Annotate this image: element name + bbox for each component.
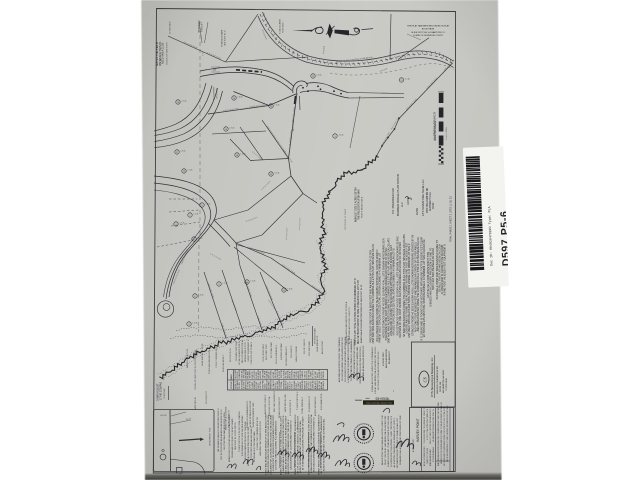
svg-text:RVSD: RVSD [415,208,419,215]
svg-text:CTS Surveying & Mapping, Inc: CTS Surveying & Mapping, Inc [430,357,434,397]
svg-text:225 TOTAL STATI: 225 TOTAL STATI [270,342,273,358]
svg-text:AND WAS ADJUSTED USING THE COM: AND WAS ADJUSTED USING THE COMPASS [338,336,341,382]
svg-text:1 inch = 200 ft: 1 inch = 200 ft [445,127,448,140]
svg-text:1.8 Ac: 1.8 Ac [237,96,242,99]
svg-text:ACRES SETBACKS F: ACRES SETBACKS F [314,395,317,416]
svg-text:ONE FOOT IN 100000 FEET E: ONE FOOT IN 100000 FEET E [235,422,237,450]
svg-text:THIS PLAT: THIS PLAT [163,387,166,399]
svg-text:IS FOUND TO: IS FOUND TO [206,391,208,404]
svg-text:ER ANGLE P: ER ANGLE P [388,350,391,364]
svg-text:00 FEET AND: 00 FEET AND [169,21,172,34]
svg-text:1.0 Ac: 1.0 Ac [198,294,203,297]
svg-text:40 MINIMUM LOT: 40 MINIMUM LOT [309,395,311,412]
svg-text:CISION OF ONE FOOT: CISION OF ONE FOOT [167,41,169,65]
svg-text:1.8 Ac: 1.8 Ac [287,288,292,291]
svg-text:GRAPHIC SCALE: GRAPHIC SCALE [434,120,437,141]
svg-text:ENT USED TOPCON GTS 225 TOTAL: ENT USED TOPCON GTS 225 TOTAL STATION ZO… [408,243,411,338]
svg-text:2880 HOLCOMB BR RD: 2880 HOLCOMB BR RD [427,188,429,213]
svg-text:ION OF ONE FO: ION OF ONE FO [304,338,306,354]
svg-text:1.0 Ac: 1.0 Ac [197,237,202,240]
svg-text:LAT IS BASED HAS A CLOSURE PRE: LAT IS BASED HAS A CLOSURE PRECISION O [217,408,220,452]
svg-text:ASED HAS A CLOSURE PRECISION O: ASED HAS A CLOSURE PRECISION OF ONE FOOT… [360,284,363,343]
svg-text:0 FEET EQUIPMENT U: 0 FEET EQUIPMENT U [248,339,250,361]
svg-text:2.0 Ac: 2.0 Ac [180,150,185,153]
svg-text:AND WAS ADJUSTED USING THE COM: AND WAS ADJUSTED USING THE COMPASS RULE … [437,401,440,466]
svg-text:FINAL PHASE 1 SHEET 2 LOT: FINAL PHASE 1 SHEET 2 LOTS 11-18, 23 [450,196,453,242]
svg-text:2.1 Ac: 2.1 Ac [405,78,410,81]
svg-text:ACRES SETBACKS FRONT 40 SIDE 1: ACRES SETBACKS FRONT 40 SIDE 15 REAR 40 … [323,418,326,471]
svg-text:RATE WITHIN: RATE WITHIN [194,397,197,410]
svg-text:THIS PLAT IS: THIS PLAT IS [290,345,293,358]
svg-text:ER ANGL: ER ANGL [322,380,325,390]
svg-text:PLAT HAS BEEN C: PLAT HAS BEEN C [222,354,225,372]
svg-text:T USED TOPCON GTS 225 TOTAL ST: T USED TOPCON GTS 225 TOTAL STATION [238,411,241,452]
svg-text:CISION OF ONE FOOT IN 35000 FE: CISION OF ONE FOOT IN 35000 FEET AND [194,349,197,390]
svg-text:BOOK PAGE: BOOK PAGE [422,28,435,31]
svg-text:US 411: US 411 [160,415,167,417]
svg-text:ALPHARETTA GA: ALPHARETTA GA [429,192,432,211]
svg-text:RULE THIS PLAT HAS BEEN CALCUL: RULE THIS PLAT HAS BEEN CALCULATED FOR [384,415,387,464]
svg-text:HE FIELD DATA UPON WHICH THIS: HE FIELD DATA UPON WHICH THIS PLAT [244,421,247,460]
svg-text:ING R 40 MINIMUM LOT SIZE 2 AC: ING R 40 MINIMUM LOT SIZE 2 ACRES SETBAC… [446,405,449,462]
svg-text:LD DATA UPON WHICH THIS PLAT I: LD DATA UPON WHICH THIS PLAT IS [432,409,435,442]
svg-text:DATA UPON WHICH THIS: DATA UPON WHICH THIS [252,402,255,427]
svg-text:1.2 Ac: 1.2 Ac [222,282,227,285]
svg-text:EEN CALCULATED FOR CLOSURE AND: EEN CALCULATED FOR CLOSURE AND IS FOUND … [313,417,316,472]
svg-text:IPMENT USED TOPCON GTS 225 TOT: IPMENT USED TOPCON GTS 225 TOTAL STATION… [379,252,382,343]
svg-text:1.3 Ac: 1.3 Ac [250,280,255,283]
svg-text:WHICH THIS PLAT IS BASED HAS: WHICH THIS PLAT IS BASED HAS [356,346,359,380]
svg-text:5000 FEET AND: 5000 FEET AND [308,341,311,356]
svg-text:3.2 Ac: 3.2 Ac [274,172,279,175]
svg-text:ULAR ERROR OF 02 PE: ULAR ERROR OF 02 PE [201,343,204,366]
svg-text:HAS BEEN CALCULATED FOR CLOS: HAS BEEN CALCULATED FOR CLOS [259,421,262,456]
svg-text:CLERK OF SUPERIOR COURT: CLERK OF SUPERIOR COURT [413,35,443,37]
svg-text:RES SETBACKS FRONT 40 SIDE 15: RES SETBACKS FRONT 40 SIDE 15 REAR 40 AL… [357,280,360,344]
svg-text:ADJUSTED USING T: ADJUSTED USING T [264,394,267,414]
svg-text:AT IS BASED HAS A CLOSURE PREC: AT IS BASED HAS A CLOSURE PRECISION OF O… [302,416,305,470]
svg-text:1.1 Ac: 1.1 Ac [187,169,192,172]
svg-text:1.0 Ac: 1.0 Ac [193,213,198,216]
svg-text:N 100000 FEET EQUIPMENT USED T: N 100000 FEET EQUIPMENT USED TOPCON G [348,335,350,382]
svg-text:N 44 12 E 210.5: N 44 12 E 210.5 [299,218,301,230]
svg-text:1.9 Ac: 1.9 Ac [229,127,234,130]
svg-text:POINT AND WAS ADJUST: POINT AND WAS ADJUST [208,349,211,374]
svg-text:PLAT IS BASED HAS A: PLAT IS BASED HAS A [361,196,364,218]
svg-text:ANGULAR ERROR: ANGULAR ERROR [385,348,388,368]
svg-text:ONE FOOT IN 350: ONE FOOT IN 350 [427,448,429,464]
svg-text:RECISION OF ONE FOOT IN 35000: RECISION OF ONE FOOT IN 35000 FEET AND A… [399,242,402,337]
svg-text:AND AN ANGULAR: AND AN ANGULAR [429,449,432,466]
svg-text:ALPHARETTA GA 30022: ALPHARETTA GA 30022 [442,369,445,393]
svg-text:F 02 PER ANGLE: F 02 PER ANGLE [432,446,435,462]
svg-text:IS PLAT HAS BEEN CALCULATED FO: IS PLAT HAS BEEN CALCULATED FOR CLO [341,337,344,381]
svg-text:IS FOUND TO BE ACCURATE WITHIN: IS FOUND TO BE ACCURATE WITHIN [377,351,380,390]
svg-text:1.1 Ac: 1.1 Ac [192,322,197,325]
svg-text:HARVEY POINT: HARVEY POINT [416,418,420,442]
svg-text:SS RULE THIS PLAT: SS RULE THIS PLAT [235,340,238,361]
svg-text:P.O. PREPARED FOR: P.O. PREPARED FOR [391,188,395,214]
svg-text:ONE FOOT IN 10: ONE FOOT IN 10 [225,29,227,46]
svg-text:CALCULATED FOR CLOSURE AND IS: CALCULATED FOR CLOSURE AND IS FOUND TO [290,420,293,470]
svg-text:ET AND AN ANGULAR ERROR OF: ET AND AN ANGULAR ERROR OF [362,345,365,380]
svg-text:HE FIELD DATA UPO: HE FIELD DATA UPO [285,346,288,366]
svg-text:OSURE AND IS FOUND TO BE ACCUR: OSURE AND IS FOUND TO BE ACCURATE [231,418,234,458]
svg-text:OPCON GTS: OPCON GTS [217,87,219,99]
svg-text:ACRES SETBACKS FRONT: ACRES SETBACKS FRONT [249,400,252,427]
svg-text:T USED TOPCON G: T USED TOPCON G [297,391,299,410]
svg-text:ET EQUIPMENT: ET EQUIPMENT [214,86,216,100]
svg-text:1.4 Ac: 1.4 Ac [240,153,245,156]
svg-text:LLC: LLC [400,202,404,207]
svg-text:ENT USED TOPC: ENT USED TOPC [266,343,268,360]
svg-text:ASED HAS A CLOS: ASED HAS A CLOS [162,42,165,64]
svg-text:NG R 40 MINIMUM L: NG R 40 MINIMUM L [276,344,278,364]
svg-text:02 PER ANGLE POINT AND WAS: 02 PER ANGLE POINT AND WAS [253,431,256,462]
svg-text:SURE AND I: SURE AND I [282,21,285,33]
svg-text:D597 P5-6: D597 P5-6 [498,210,512,266]
svg-text:35000 FEET AND AN ANGULAR E: 35000 FEET AND AN ANGULAR E [250,426,253,458]
svg-text:SLIDE 597 PGS 5-6 BARTOW CO: SLIDE 597 PGS 5-6 BARTOW CO [411,31,445,34]
svg-text:CENTERLINE OF CREEK: CENTERLINE OF CREEK [345,208,347,230]
svg-text:AS A CLOSURE PRECI: AS A CLOSURE PRECI [423,445,426,466]
svg-text:N 35000 FEET: N 35000 FEET [383,351,385,366]
svg-text:WITHIN ONE FOOT I: WITHIN ONE FOOT I [245,342,247,362]
svg-text:IS BASED HAS A CLOSURE PRECISI: IS BASED HAS A CLOSURE PRECISION OF ONE [399,415,402,465]
svg-text:770 555 0100: 770 555 0100 [446,377,448,391]
svg-text:N 44 12 E 210.5: N 44 12 E 210.5 [286,228,288,240]
svg-text:AND WAS ADJUSTED USING THE COM: AND WAS ADJUSTED USING THE COMPASS RULE … [417,236,420,331]
svg-text:2 ACRES SETBAC: 2 ACRES SETBAC [280,342,283,360]
svg-text:R ANGLE P: R ANGLE P [201,21,204,32]
svg-text:D WAS ADJUSTED USING THE COMPA: D WAS ADJUSTED USING THE COMPASS R [371,346,374,392]
svg-text:2.2 Ac: 2.2 Ac [181,100,186,103]
svg-text:MPASS RULE THIS PLAT HAS BEEN: MPASS RULE THIS PLAT HAS BEEN CALCULATED [228,414,231,462]
svg-text:MUM LOT SIZE 2 ACRES SETBA: MUM LOT SIZE 2 ACRES SETBA [355,187,358,222]
svg-text:CURVE TABLE: CURVE TABLE [230,374,233,389]
svg-text:G THE COMPAS: G THE COMPAS [160,381,163,400]
svg-text:GLE POINT AND WAS ADJUSTED USI: GLE POINT AND WAS ADJUSTED USING [223,411,226,450]
svg-text:A TRUE COPY: A TRUE COPY [412,438,415,452]
svg-text:CON GTS 225 TOTAL S: CON GTS 225 TOTAL S [250,341,253,364]
svg-text:CTS SURVEYING TEAM, LLC: CTS SURVEYING TEAM, LLC [421,179,425,216]
svg-text:SUITE 100: SUITE 100 [440,381,442,392]
svg-text:D IS FOUND TO BE ACCURATE WITH: D IS FOUND TO BE ACCURATE WITHIN ONE [344,336,347,381]
svg-text:LATED FOR CLOSURE AND IS FOUND: LATED FOR CLOSURE AND IS FOUND TO BE ACC… [440,402,443,464]
svg-text:UPON WHICH THIS: UPON WHICH THIS [210,427,212,446]
svg-text:IN 100000 FEET EQUIPMENT USED: IN 100000 FEET EQUIPMENT USED TOPCON GTS… [443,406,446,466]
svg-text:E AND IS FOUND TO BE ACCURATE: E AND IS FOUND TO BE ACCURATE WITHIN ONE [387,415,390,466]
svg-text:1.6 Ac: 1.6 Ac [316,74,321,77]
svg-text:IELD DATA UPON: IELD DATA UPON [320,393,323,410]
svg-text:HAS A CLOSURE: HAS A CLOSURE [295,345,298,362]
svg-text:T IN 100000 FEET EQUIPMENT USE: T IN 100000 FEET EQUIPMENT USED TO [424,407,426,444]
svg-text:G THE COMPASS RUL: G THE COMPASS RUL [215,346,218,368]
svg-text:D USING THE COMPASS RULE THI: D USING THE COMPASS RULE THI [256,417,259,450]
svg-text:BASED HAS A CLOS: BASED HAS A CLOS [186,348,189,368]
svg-text:AL STATION ZONING R 40 MINIMUM: AL STATION ZONING R 40 MINIMUM LOT SIZE … [393,417,396,467]
svg-text:HIS PLAT IS BAS: HIS PLAT IS BAS [314,328,317,344]
svg-text:TO BE ACCURATE: TO BE ACCURATE [221,29,224,47]
svg-text:ASS RULE THIS PLA: ASS RULE THIS PLA [268,396,271,416]
svg-text:THIS PLAT HAS BEEN RECORDED IN: THIS PLAT HAS BEEN RECORDED IN PLAT [407,25,450,28]
svg-text:S PLAT HAS BEEN CALCULATED FOR: S PLAT HAS BEEN CALCULATED FOR CLOSU [374,346,377,394]
svg-text:ED FOR CLOS: ED FOR CLOS [230,348,232,362]
svg-text:BARBER RIDGE PLANTATION: BARBER RIDGE PLANTATION [396,174,400,216]
svg-text:30022: 30022 [433,202,435,209]
svg-text:N ONE FOOT IN 100000 FEET EQUI: N ONE FOOT IN 100000 FEET EQUIPMENT U [444,244,447,296]
svg-text:ERROR: ERROR [323,371,325,379]
svg-text:UM LOT SIZE 2 ACRES SETBACKS F: UM LOT SIZE 2 ACRES SETBACKS FRO [429,408,432,444]
svg-text:OOT IN 35000 FEET AND AN ANGUL: OOT IN 35000 FEET AND AN ANGULAR ERROR O… [220,409,223,460]
svg-text:CS: CS [423,376,428,382]
svg-text:93+0936-: 93+0936- [376,397,390,401]
svg-text:THE FIELD DATA UPON WHI: THE FIELD DATA UPON WHI [358,189,361,220]
svg-text:NT USED TOPCON GTS 225 TOTAL S: NT USED TOPCON GTS 225 TOTAL STATION ZON… [393,248,396,335]
svg-text:5000 FEET AND AN ANGULAR ERRO: 5000 FEET AND AN ANGULAR ERRO [432,248,435,290]
svg-text:2880 HOLCOMB BRIDGE RD: 2880 HOLCOMB BRIDGE RD [437,366,439,394]
svg-text:RATE WITHIN ONE: RATE WITHIN ONE [284,394,287,412]
svg-text:RE AND IS FOUND TO: RE AND IS FOUND TO [278,397,281,418]
svg-text:RECORDED BARTOW: RECORDED BARTOW [366,401,393,405]
svg-text:4.3 Ac: 4.3 Ac [338,134,343,137]
svg-text:1.1 Ac: 1.1 Ac [179,222,184,225]
svg-text:ANGLE POINT AND WAS ADJUSTED U: ANGLE POINT AND WAS ADJUSTED USING THE [381,415,384,465]
svg-text:ANGLE POINT: ANGLE POINT [321,340,324,354]
svg-text:CON GTS 225 TOTAL STATION ZONI: CON GTS 225 TOTAL STATION ZONING R 40 MI… [354,278,357,345]
svg-text:225 TOTAL STATION ZONING R 40: 225 TOTAL STATION ZONING R 40 MINIMUM LO… [275,420,278,470]
svg-text:OINT AND WAS ADJUSTED USING TH: OINT AND WAS ADJUSTED USING THE COMPASS … [372,244,375,344]
svg-text:R 40 MINIMUM LOT SIZE 2 ACRES: R 40 MINIMUM LOT SIZE 2 ACRES SETBAC [241,415,244,456]
svg-text:URE PRECISION OF ONE FOOT IN 3: URE PRECISION OF ONE FOOT IN 3 [360,346,362,384]
svg-text:1.2 Ac: 1.2 Ac [205,203,210,206]
svg-text:OT IN 100000 FEET: OT IN 100000 FEET [263,343,265,362]
svg-text:L L L: L L L [201,52,203,56]
svg-text:ZONING R 40 MINIMUM LOT: ZONING R 40 MINIMUM LOT [247,400,249,428]
svg-text:2 ACRES SETBACKS FRONT 40 SIDE: 2 ACRES SETBACKS FRONT 40 SIDE 15 [353,338,356,379]
svg-text:TOTAL STATION Z: TOTAL STATION Z [301,396,304,414]
svg-text:N 100000 FEET E: N 100000 FEET E [290,399,292,416]
svg-text:N CALCULATED: N CALCULATED [279,18,282,34]
svg-text:ND IS FOUND TO BE AC: ND IS FOUND TO BE AC [241,339,244,363]
svg-text:EEN CALCULATED FO: EEN CALCULATED FO [273,390,276,412]
svg-text:N 100000 FEET EQUIPMENT USED T: N 100000 FEET EQUIPMENT USED TOPCON GTS [391,415,393,466]
svg-text:N CALCULATED FOR CL: N CALCULATED FOR CL [238,340,241,365]
svg-text:ED TOPCON GTS 225 TOTAL STATIO: ED TOPCON GTS 225 TOTAL STATION ZONING R… [423,239,426,337]
svg-text:1.5 Ac: 1.5 Ac [274,104,279,107]
svg-text:S 225 TOTAL STATION ZONING R 4: S 225 TOTAL STATION ZONING R 4 [426,409,429,440]
